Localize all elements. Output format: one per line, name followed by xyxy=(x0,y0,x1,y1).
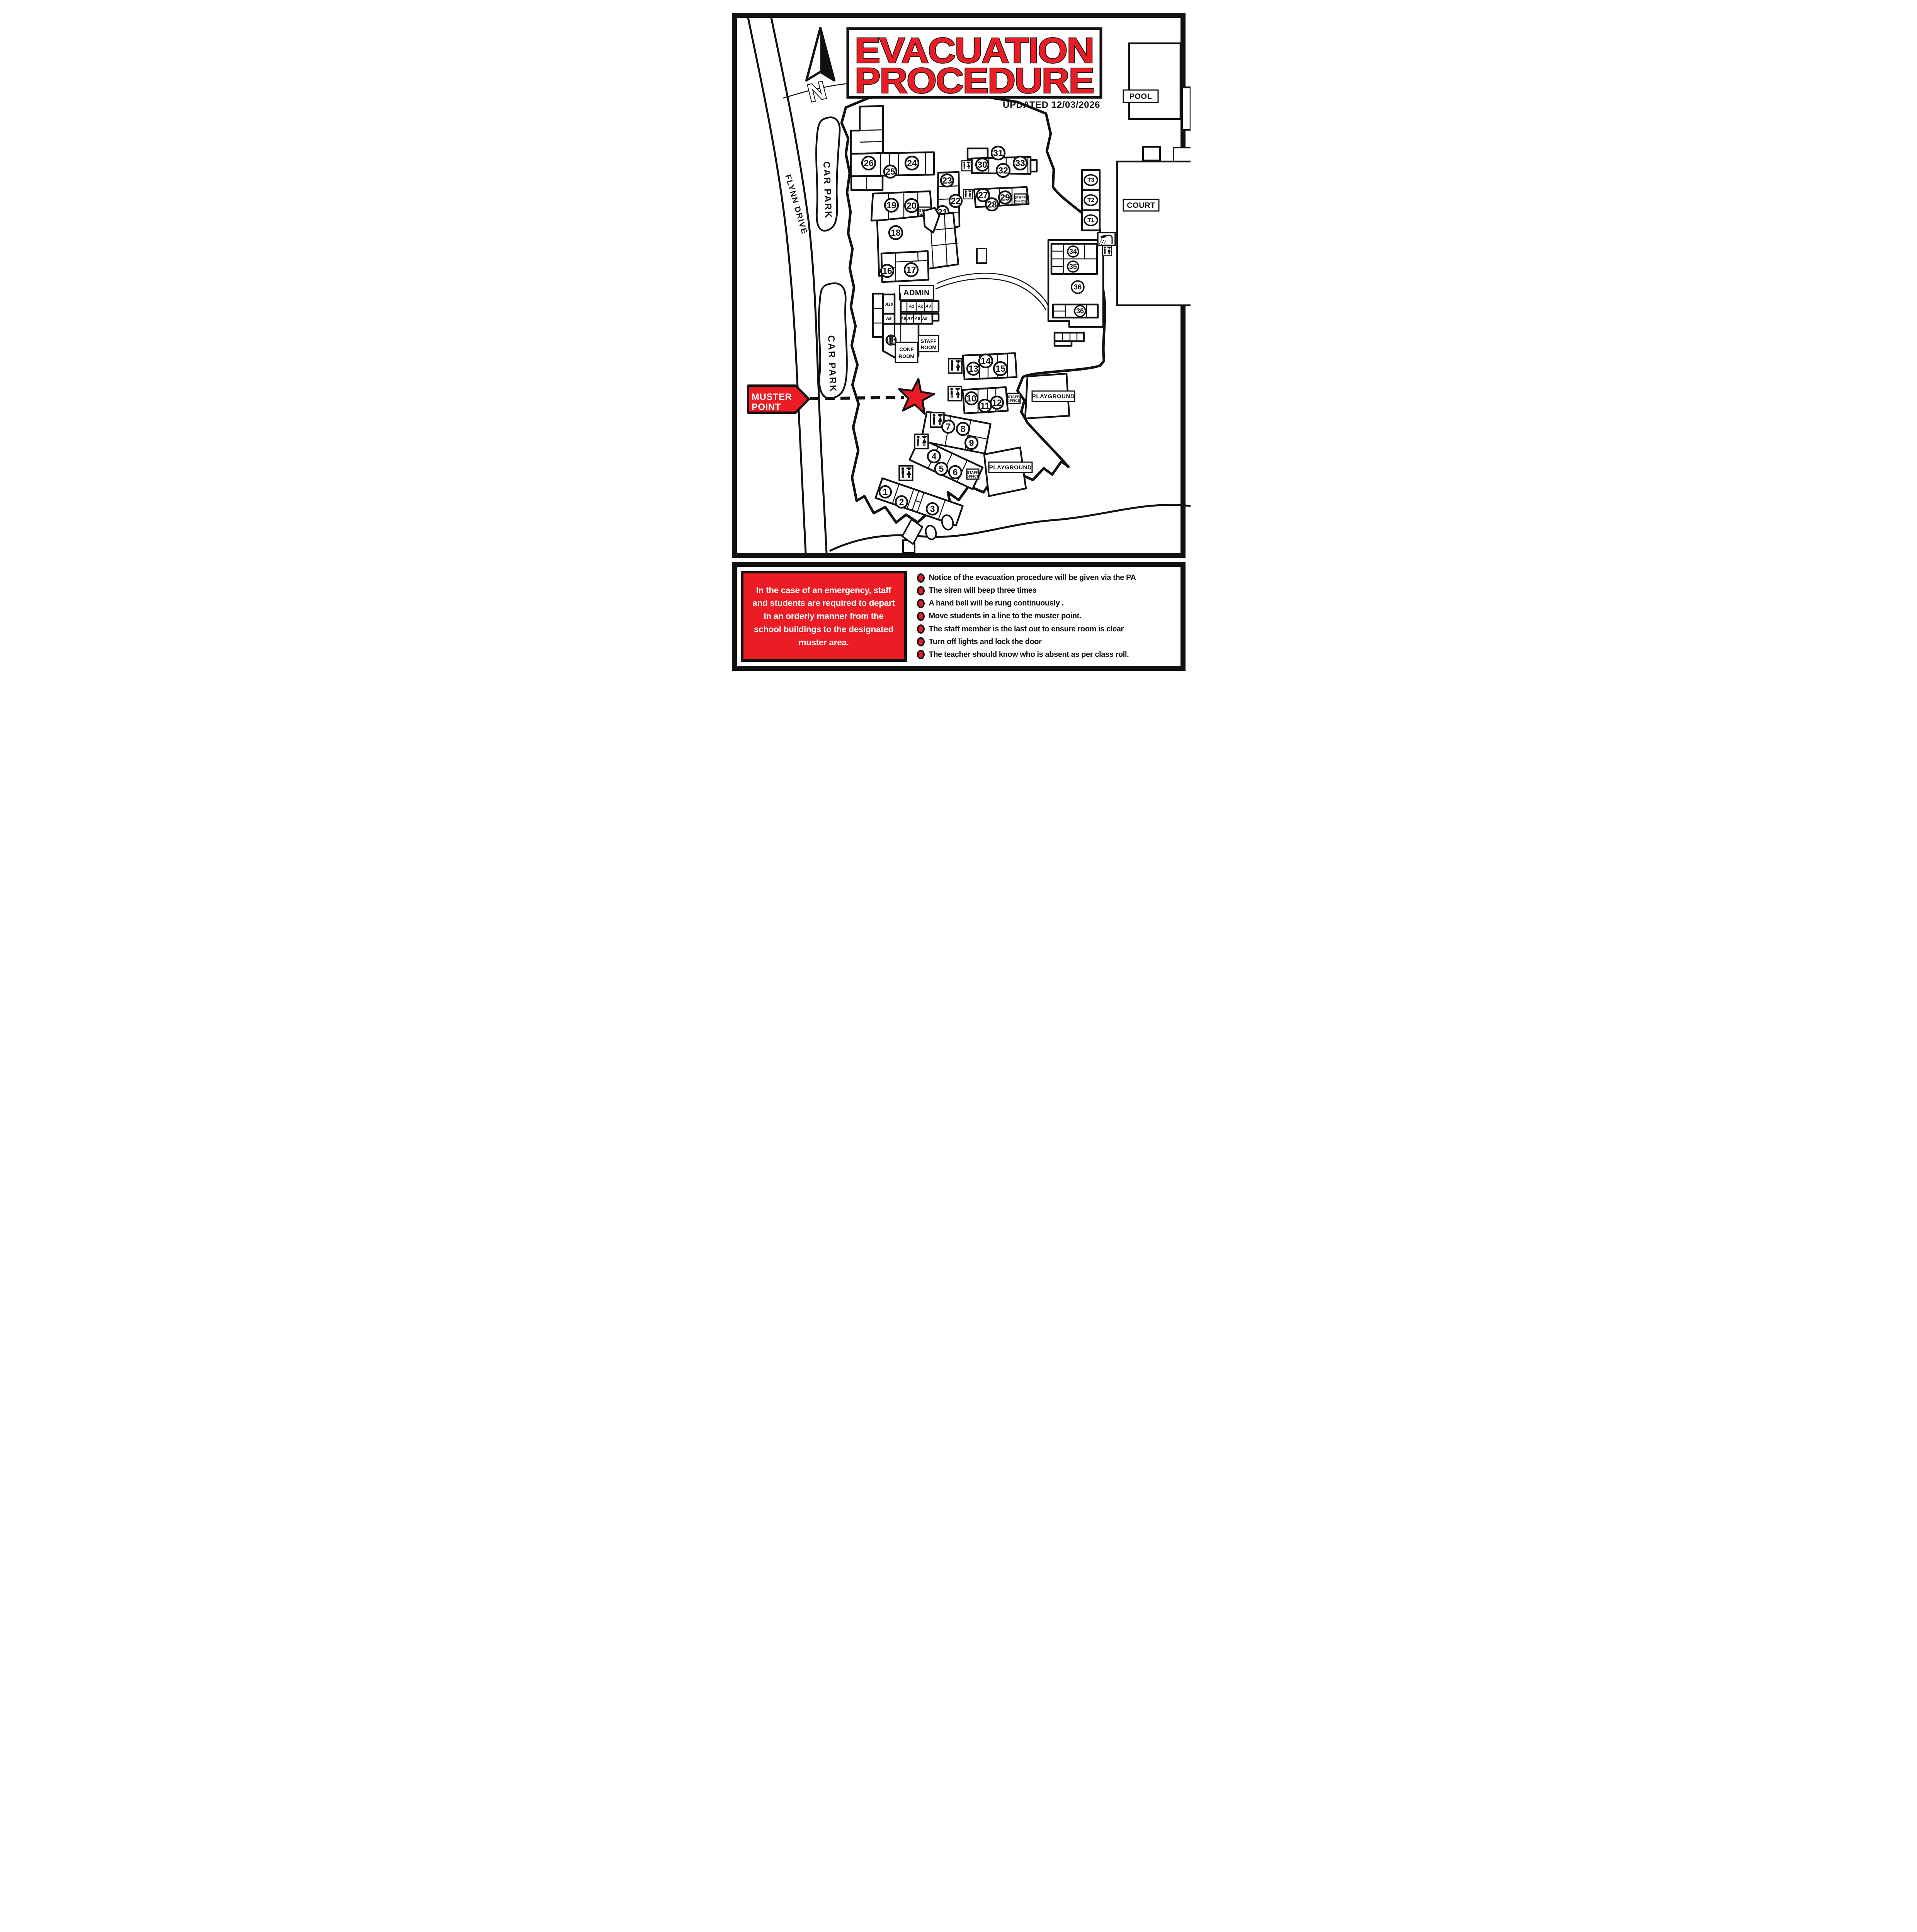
t-rooms: T3 T2 T1 xyxy=(1082,170,1100,230)
list-item: The teacher should know who is absent as… xyxy=(917,650,1172,659)
room-19: 19 xyxy=(886,200,896,210)
building-27-29: 27 28 29 STAFF OFFICE xyxy=(963,187,1028,211)
room-15: 15 xyxy=(995,364,1005,374)
title-line2: PROCEDURE xyxy=(855,61,1094,100)
playground-upper: PLAYGROUND xyxy=(1025,374,1075,418)
map-panel: CAR PARK CAR PARK FLYNN DRIVE N EVACUATI… xyxy=(732,13,1186,558)
staff-office-label: STAFF xyxy=(1014,196,1026,199)
room-8: 8 xyxy=(960,424,965,434)
room-a10: A10 xyxy=(885,302,893,307)
car-park-upper-label: CAR PARK xyxy=(821,161,833,219)
small-structure xyxy=(977,248,987,263)
procedure-text: The teacher should know who is absent as… xyxy=(929,650,1129,659)
pool-area: POOL xyxy=(1123,43,1191,165)
bullet-icon xyxy=(917,650,925,659)
evacuation-poster: CAR PARK CAR PARK FLYNN DRIVE N EVACUATI… xyxy=(719,0,1198,681)
procedure-text: The staff member is the last out to ensu… xyxy=(929,625,1124,634)
room-29: 29 xyxy=(1000,192,1010,202)
conf-room-label: CONF xyxy=(899,347,913,352)
room-t3: T3 xyxy=(1087,177,1094,184)
list-item: Notice of the evacuation procedure will … xyxy=(917,573,1172,583)
bullet-icon xyxy=(917,599,925,608)
room-16: 16 xyxy=(882,266,892,276)
playground-label: PLAYGROUND xyxy=(1032,393,1074,400)
list-item: The siren will beep three times xyxy=(917,586,1172,595)
updated-date: UPDATED 12/03/2026 xyxy=(1003,100,1100,110)
court-area: COURT xyxy=(1117,162,1191,305)
room-a7: A7 xyxy=(907,316,913,321)
staff-office-label: OFFICE xyxy=(1013,199,1026,203)
pool-label: POOL xyxy=(1129,92,1152,101)
car-parks: CAR PARK CAR PARK xyxy=(816,117,847,398)
list-item: Move students in a line to the muster po… xyxy=(917,612,1172,621)
room-7: 7 xyxy=(946,422,951,432)
room-a3: A3 xyxy=(925,304,930,309)
toilet-icon xyxy=(1102,246,1112,256)
bullet-icon xyxy=(917,637,925,646)
room-a1: A1 xyxy=(908,304,914,309)
room-32: 32 xyxy=(998,165,1008,175)
list-item: A hand bell will be rung continuously . xyxy=(917,599,1172,608)
flynn-drive-label: FLYNN DRIVE xyxy=(783,173,809,235)
toilet-icon xyxy=(899,466,913,480)
school-map: CAR PARK CAR PARK FLYNN DRIVE N EVACUATI… xyxy=(737,18,1191,553)
room-2: 2 xyxy=(899,497,904,507)
procedure-text: A hand bell will be rung continuously . xyxy=(929,599,1064,608)
room-36: 36 xyxy=(1073,283,1081,291)
room-28: 28 xyxy=(987,199,997,209)
list-item: Turn off lights and lock the door xyxy=(917,637,1172,646)
muster-point-label: POINT xyxy=(752,402,781,412)
room-13: 13 xyxy=(968,364,978,374)
room-1: 1 xyxy=(883,487,888,497)
room-27: 27 xyxy=(978,190,988,200)
staff-office-label: STAFF xyxy=(967,471,978,474)
room-t1: T1 xyxy=(1087,217,1094,224)
procedure-text: Notice of the evacuation procedure will … xyxy=(929,573,1136,582)
admin-complex: ADMIN A10 A1 A2 A3 A9 A8 A7 xyxy=(873,286,939,362)
toilet-icon xyxy=(948,359,961,373)
room-3: 3 xyxy=(930,504,935,514)
title-block: EVACUATION PROCEDURE UPDATED 12/03/2026 xyxy=(848,29,1101,110)
walking-path xyxy=(936,273,1048,310)
list-item: The staff member is the last out to ensu… xyxy=(917,624,1172,634)
bullet-icon xyxy=(917,612,925,621)
admin-label: ADMIN xyxy=(903,289,929,297)
room-a6: A6 xyxy=(914,316,920,321)
room-35: 35 xyxy=(1069,263,1077,270)
toilet-icon xyxy=(963,189,972,199)
playground-lower: PLAYGROUND xyxy=(984,447,1032,496)
building-10-12: 10 11 12 STAFF OFFICE xyxy=(948,386,1020,413)
room-t2: T2 xyxy=(1087,197,1094,204)
car-park-lower-label: CAR PARK xyxy=(826,335,838,393)
procedure-text: The siren will beep three times xyxy=(929,586,1037,595)
building-16-17: 16 17 xyxy=(881,251,929,282)
toilet-icon xyxy=(962,161,971,171)
room-23: 23 xyxy=(942,175,952,185)
north-arrow-icon: N xyxy=(805,28,834,107)
room-36b: 36 xyxy=(1076,307,1084,315)
room-20: 20 xyxy=(907,201,917,211)
building-13-15: 13 14 15 xyxy=(948,353,1016,379)
shower-icon xyxy=(1098,233,1115,245)
court-label: COURT xyxy=(1127,201,1155,210)
room-34: 34 xyxy=(1069,248,1077,255)
room-9: 9 xyxy=(969,438,974,448)
bullet-icon xyxy=(917,573,925,583)
procedure-text: Move students in a line to the muster po… xyxy=(929,612,1082,621)
muster-point-label: MUSTER xyxy=(752,392,792,402)
room-4: 4 xyxy=(931,451,936,461)
bullet-icon xyxy=(917,586,925,595)
room-a8: A8 xyxy=(900,316,906,321)
building-24-26: 26 25 24 xyxy=(851,106,934,190)
room-22: 22 xyxy=(951,196,961,206)
staff-office-label: OFFICE xyxy=(1007,399,1020,403)
room-25: 25 xyxy=(885,167,895,177)
room-10: 10 xyxy=(966,393,976,403)
playground-label: PLAYGROUND xyxy=(989,464,1031,471)
room-31: 31 xyxy=(993,148,1003,158)
room-a2: A2 xyxy=(917,304,923,309)
bottom-road xyxy=(830,505,1191,551)
building-30-33: 30 31 32 33 xyxy=(962,146,1037,177)
procedure-list: Notice of the evacuation procedure will … xyxy=(911,567,1180,666)
room-14: 14 xyxy=(981,356,991,366)
room-6: 6 xyxy=(953,467,958,477)
toilet-icon xyxy=(948,386,961,401)
staff-office-label: STAFF xyxy=(1008,395,1019,399)
procedure-text: Turn off lights and lock the door xyxy=(929,638,1042,646)
staff-room-label: STAFF xyxy=(920,338,936,344)
room-a5: A5 xyxy=(921,316,927,321)
room-11: 11 xyxy=(980,401,990,411)
room-18: 18 xyxy=(891,228,901,238)
bullet-icon xyxy=(917,624,925,634)
bottom-landscape xyxy=(902,514,954,553)
north-label: N xyxy=(805,76,828,107)
muster-star-icon xyxy=(896,376,936,415)
room-33: 33 xyxy=(1015,158,1025,168)
emergency-notice-text: In the case of an emergency, staff and s… xyxy=(750,584,897,649)
toilet-icon xyxy=(915,434,928,449)
staff-room-label: ROOM xyxy=(920,345,936,350)
room-24: 24 xyxy=(907,158,917,168)
room-12: 12 xyxy=(992,398,1002,408)
conf-room-label: ROOM xyxy=(898,354,914,359)
room-a9: A9 xyxy=(885,316,891,321)
staff-office-label: OFFICE xyxy=(966,474,979,478)
instructions-panel: In the case of an emergency, staff and s… xyxy=(732,562,1186,671)
room-26: 26 xyxy=(864,158,874,168)
room-5: 5 xyxy=(939,464,944,474)
room-17: 17 xyxy=(906,265,916,275)
emergency-notice-box: In the case of an emergency, staff and s… xyxy=(741,571,907,662)
room-30: 30 xyxy=(977,160,987,170)
